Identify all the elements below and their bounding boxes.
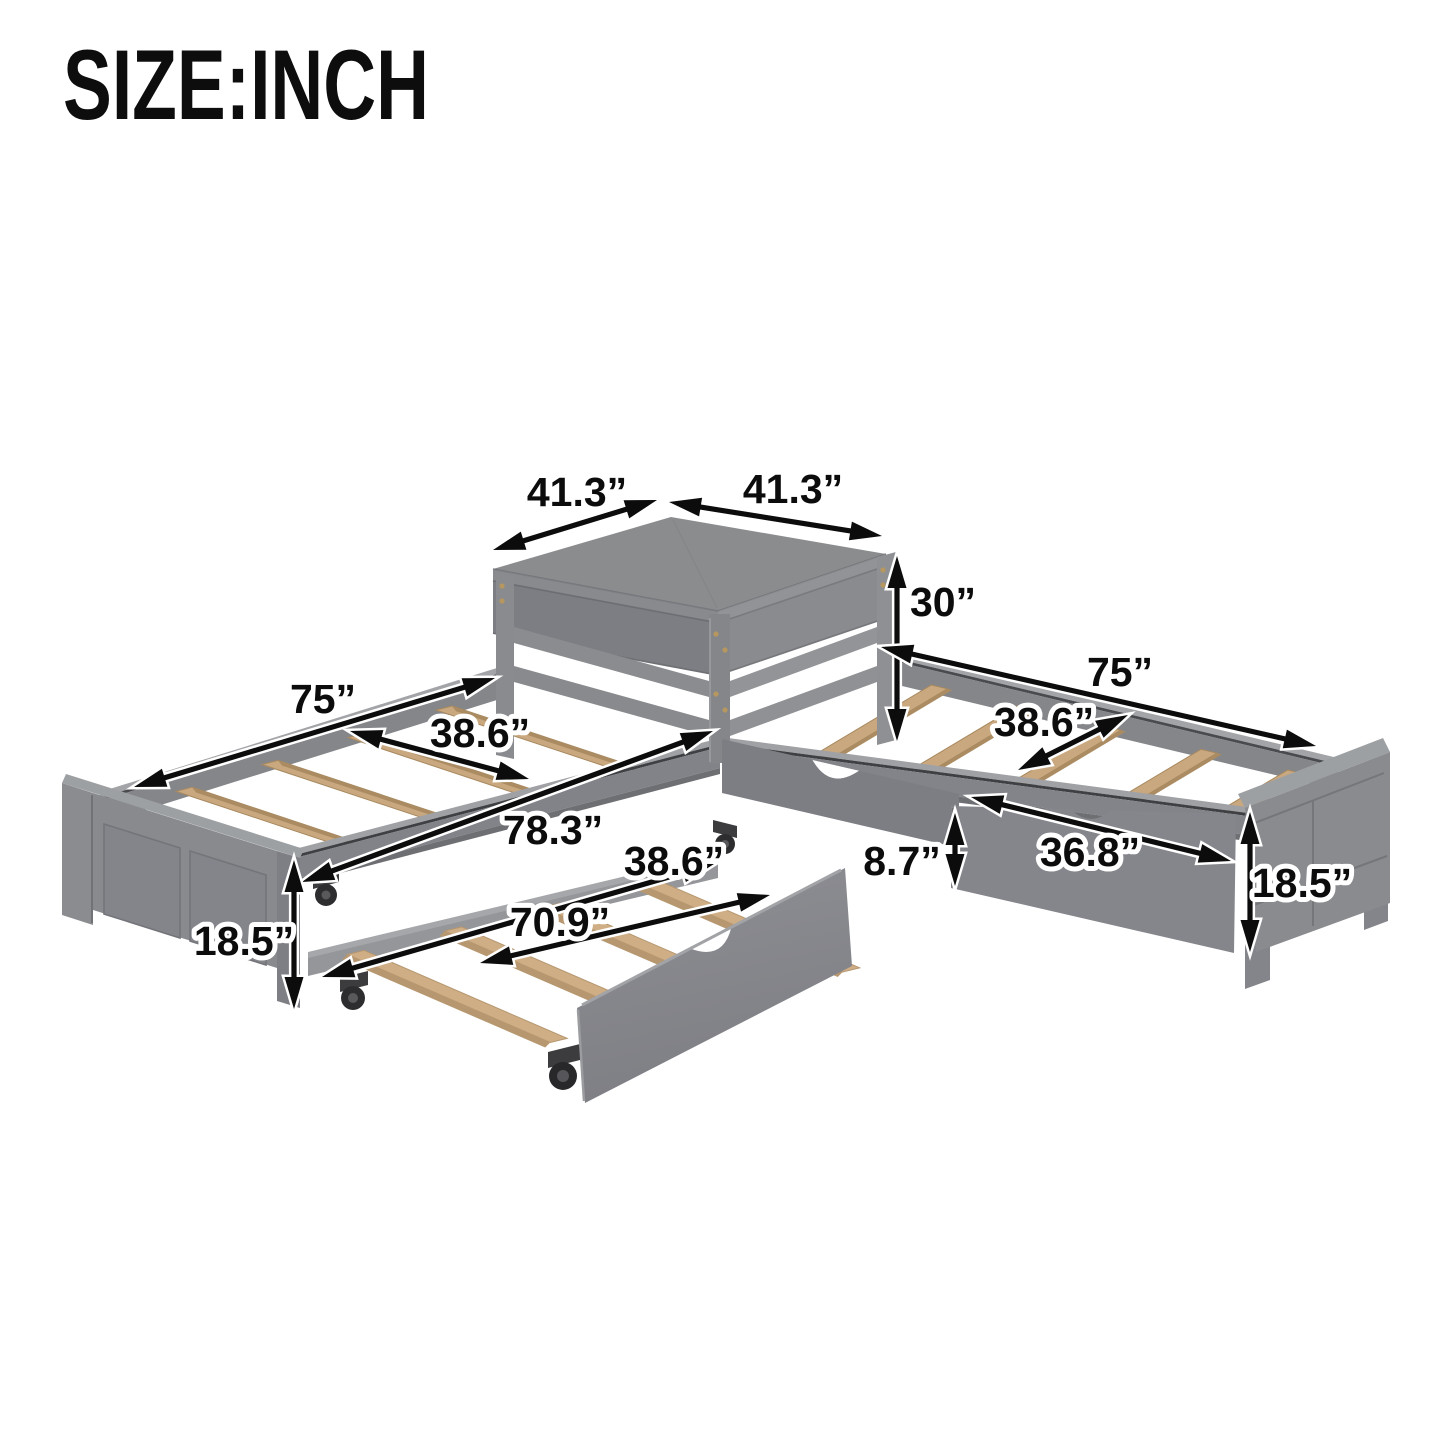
svg-text:36.8”: 36.8” <box>1040 829 1140 875</box>
svg-text:41.3”: 41.3” <box>527 469 627 515</box>
svg-text:18.5”: 18.5” <box>1252 860 1352 906</box>
svg-text:18.5”: 18.5” <box>194 918 294 964</box>
svg-text:78.3”: 78.3” <box>503 807 603 853</box>
svg-text:38.6”: 38.6” <box>994 699 1094 745</box>
svg-text:75”: 75” <box>1087 649 1153 695</box>
svg-text:SIZE:INCH: SIZE:INCH <box>63 29 429 140</box>
svg-text:41.3”: 41.3” <box>743 466 843 512</box>
svg-text:8.7”: 8.7” <box>863 838 941 884</box>
svg-text:70.9”: 70.9” <box>510 899 610 945</box>
svg-text:38.6”: 38.6” <box>624 838 724 884</box>
svg-text:30”: 30” <box>910 579 976 625</box>
svg-text:38.6”: 38.6” <box>430 710 530 756</box>
svg-text:75”: 75” <box>290 676 356 722</box>
